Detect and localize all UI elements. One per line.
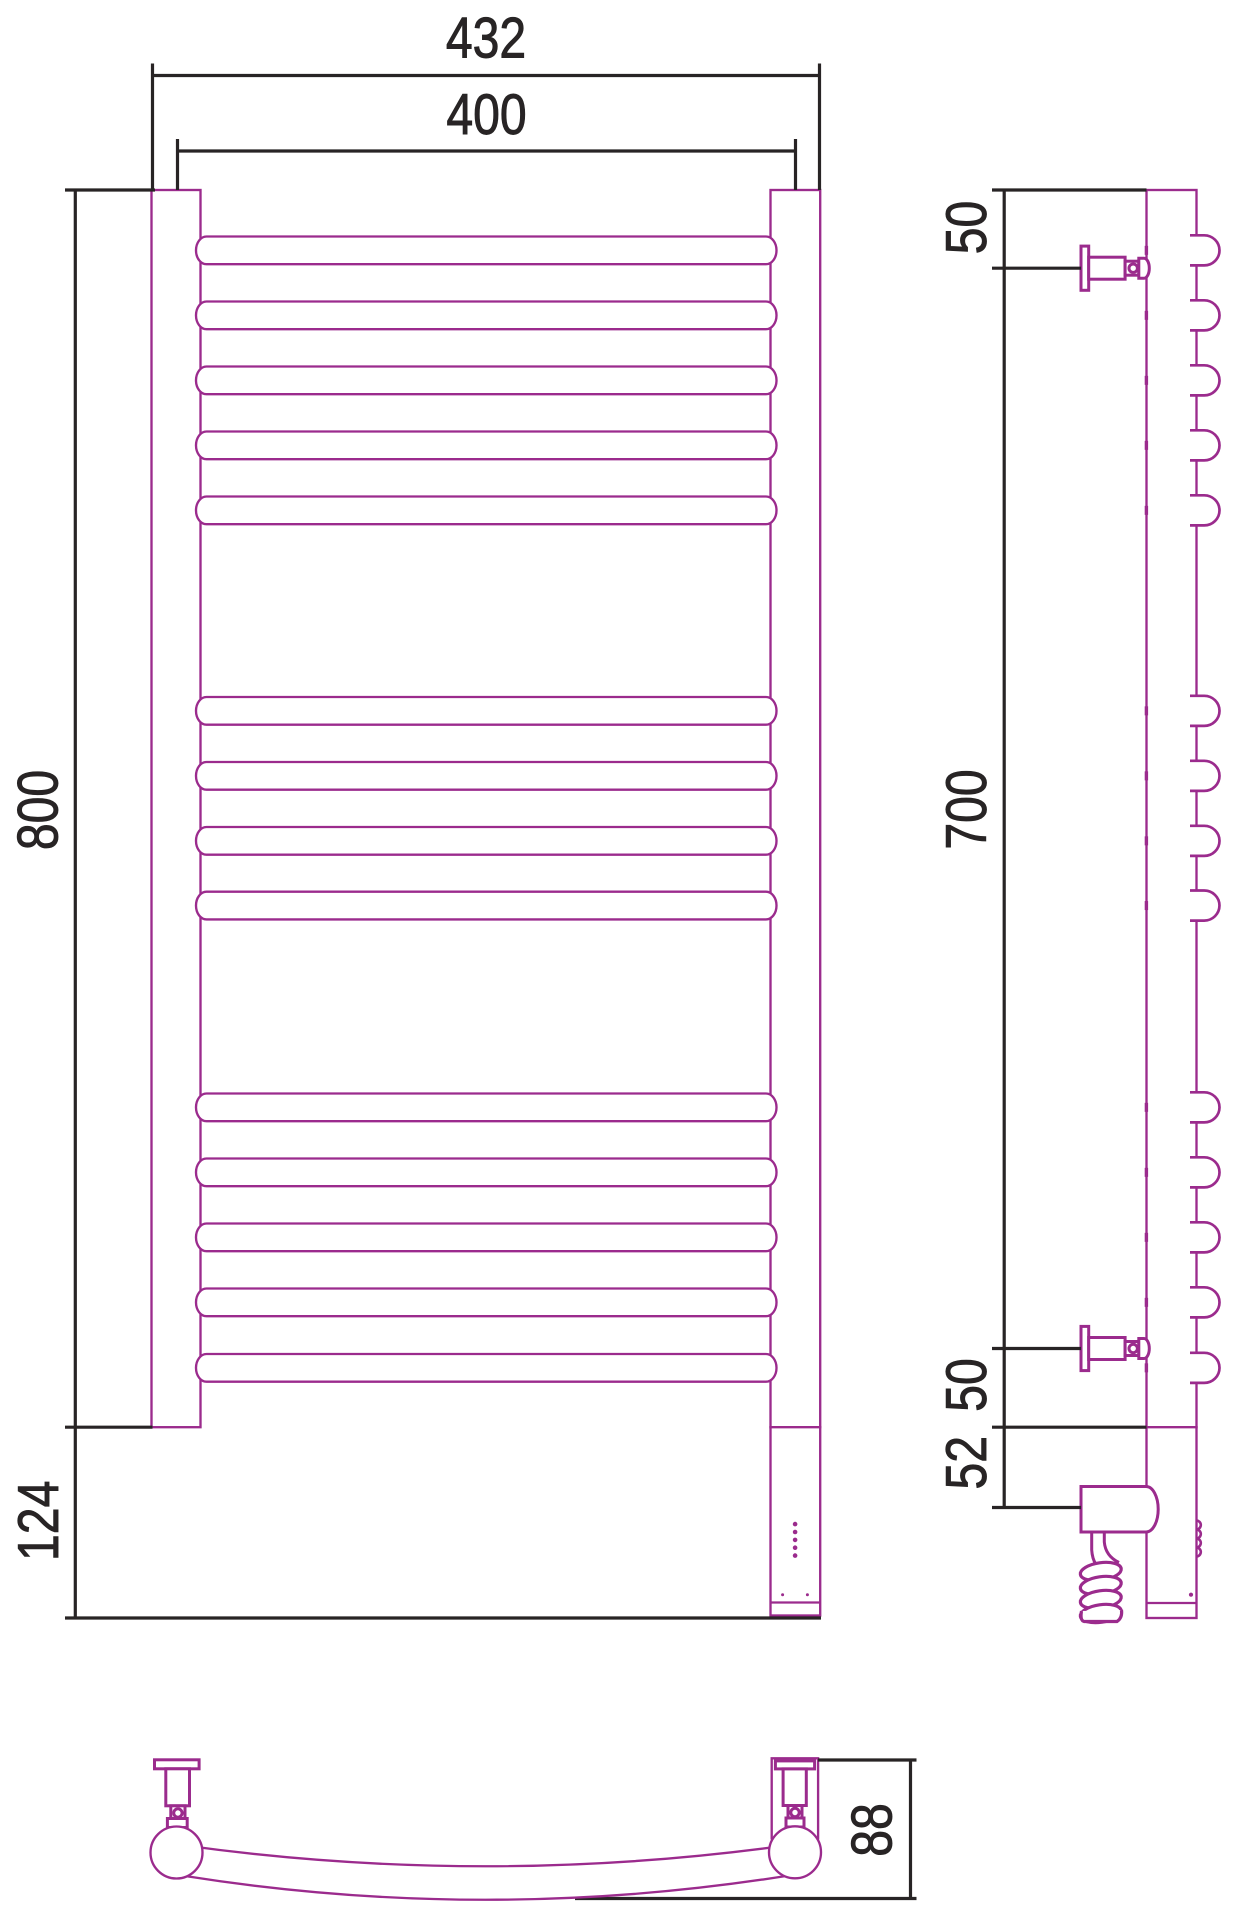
svg-text:800: 800 xyxy=(7,770,71,850)
svg-text:432: 432 xyxy=(446,7,526,71)
svg-text:88: 88 xyxy=(840,1803,904,1857)
svg-text:700: 700 xyxy=(935,769,999,849)
svg-text:52: 52 xyxy=(935,1436,999,1490)
svg-text:124: 124 xyxy=(7,1481,71,1561)
svg-text:50: 50 xyxy=(935,201,999,255)
svg-text:50: 50 xyxy=(935,1358,999,1412)
svg-text:400: 400 xyxy=(446,83,526,147)
